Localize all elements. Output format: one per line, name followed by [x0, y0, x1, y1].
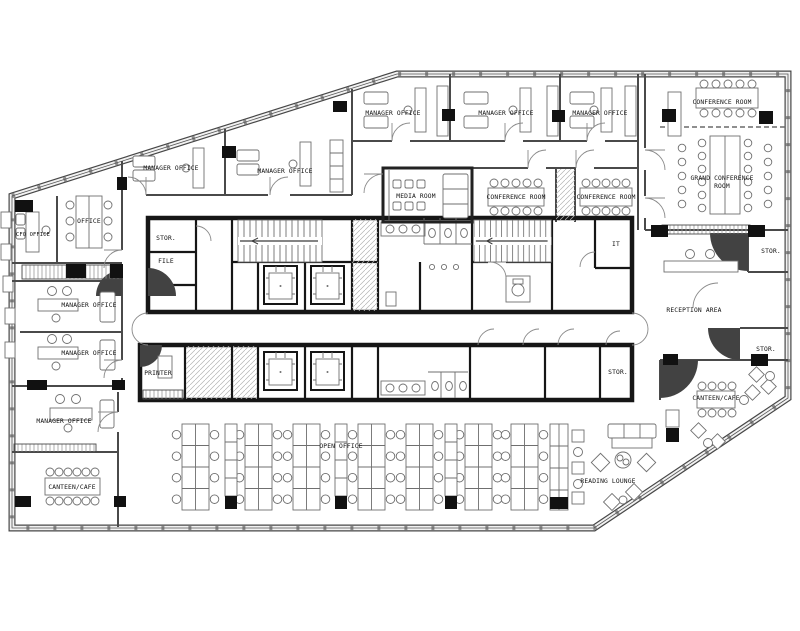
label-canteen-cafe-left: CANTEEN/CAFE — [48, 484, 95, 491]
label-manager-office-4: MANAGER OFFICE — [478, 110, 533, 117]
facade-column — [3, 276, 13, 292]
open-office-benches — [172, 424, 548, 510]
label-grand-conference-1: GRAND CONFERENCE — [690, 175, 753, 182]
elevator — [264, 352, 297, 390]
shaft — [186, 346, 231, 399]
facade-column — [5, 342, 15, 358]
label-printer: PRINTER — [144, 370, 172, 377]
label-manager-office-left-1: MANAGER OFFICE — [61, 302, 116, 309]
label-conference-room-a: CONFERENCE ROOM — [486, 194, 545, 201]
label-office: OFFICE — [77, 218, 101, 225]
label-manager-office-3: MANAGER OFFICE — [365, 110, 420, 117]
elevator — [311, 266, 344, 304]
label-it: IT — [612, 241, 620, 248]
label-media-room: MEDIA ROOM — [396, 193, 435, 200]
label-manager-office-bottom: MANAGER OFFICE — [36, 418, 91, 425]
room-manager-office-2 — [237, 140, 343, 192]
printer-shelf — [143, 390, 183, 399]
label-manager-office-left-2: MANAGER OFFICE — [61, 350, 116, 357]
label-manager-office-5: MANAGER OFFICE — [572, 110, 627, 117]
label-file: FILE — [158, 258, 174, 265]
stair-1 — [238, 220, 322, 262]
elevator — [264, 266, 297, 304]
label-open-office: OPEN OFFICE — [319, 443, 362, 450]
label-stor-core-left: STOR. — [156, 235, 176, 242]
label-reception-area: RECEPTION AREA — [666, 307, 721, 314]
shaft — [352, 219, 378, 311]
label-conference-room-b: CONFERENCE ROOM — [576, 194, 635, 201]
label-manager-office-1: MANAGER OFFICE — [143, 165, 198, 172]
floor-plan-drawing: MANAGER OFFICE MANAGER OFFICE MANAGER OF… — [0, 0, 800, 631]
shaft — [556, 169, 575, 221]
label-canteen-cafe-right: CANTEEN/CAFE — [692, 395, 739, 402]
facade-column — [5, 308, 15, 324]
label-reading-lounge: READING LOUNGE — [580, 478, 635, 485]
toilets-upper — [381, 218, 472, 306]
label-stor-right: STOR. — [756, 346, 776, 353]
floor-plan: MANAGER OFFICE MANAGER OFFICE MANAGER OF… — [0, 0, 800, 631]
label-grand-conference-2: ROOM — [714, 183, 730, 190]
facade-column — [1, 244, 11, 260]
stair-2 — [474, 220, 551, 262]
elevator — [311, 352, 344, 390]
facade-column — [1, 212, 11, 228]
shaft — [233, 346, 257, 399]
label-conference-room-top: CONFERENCE ROOM — [692, 99, 751, 106]
toilets-lower — [381, 372, 468, 398]
label-stor-top-right: STOR. — [761, 248, 781, 255]
label-manager-office-2: MANAGER OFFICE — [257, 168, 312, 175]
accessible-wc — [506, 276, 530, 302]
label-cfo-office: CFO OFFICE — [16, 232, 50, 238]
label-stor-core-right: STOR. — [608, 369, 628, 376]
building-core — [140, 169, 632, 400]
